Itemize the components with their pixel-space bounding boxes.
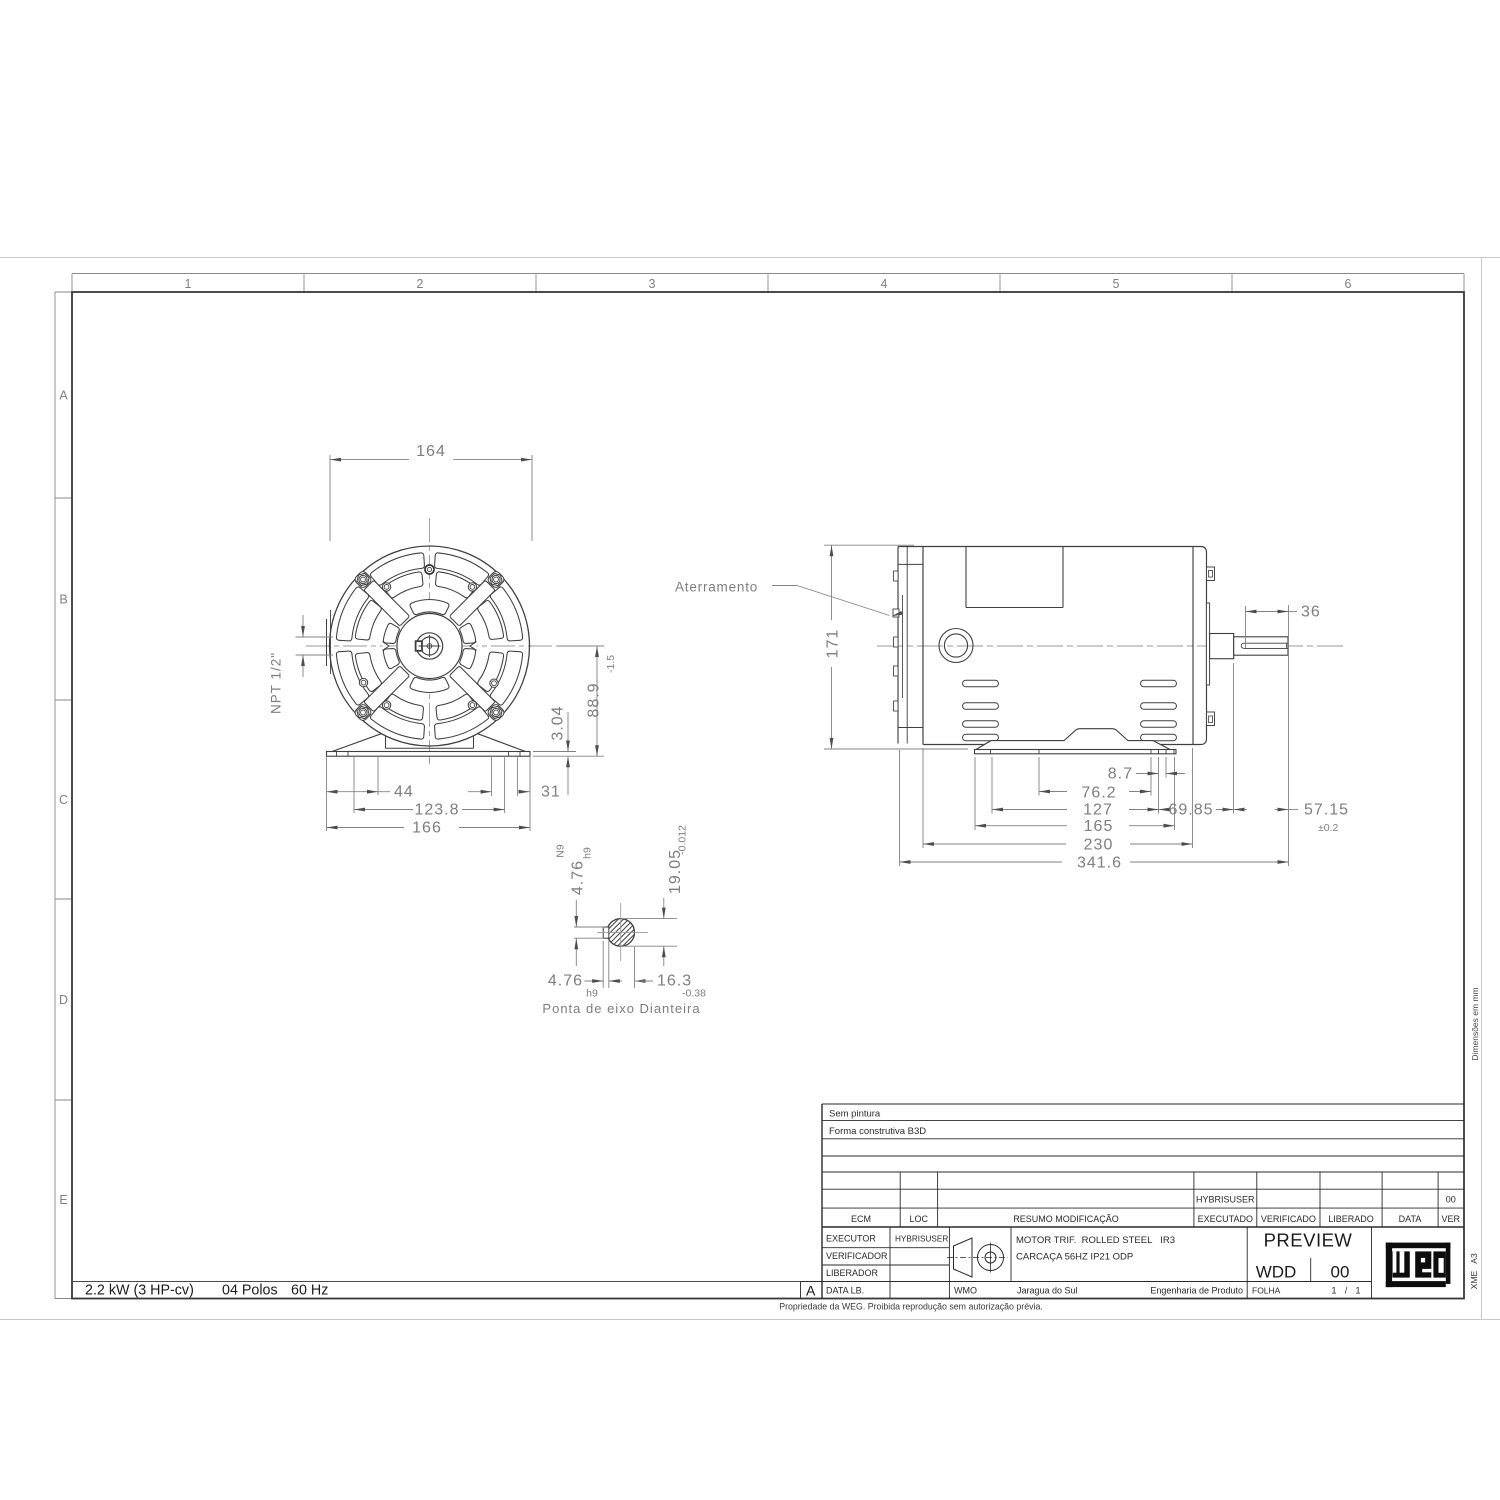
svg-text:D: D xyxy=(59,993,68,1007)
svg-text:EXECUTADO: EXECUTADO xyxy=(1198,1214,1253,1224)
svg-text:4.76: 4.76 xyxy=(570,860,587,895)
svg-text:HYBRISUSER: HYBRISUSER xyxy=(1196,1195,1255,1205)
svg-text:4: 4 xyxy=(881,277,888,291)
svg-text:MOTOR TRIF. ROLLED STEEL IR: MOTOR TRIF. ROLLED STEEL IR3 xyxy=(1016,1235,1175,1246)
svg-text:164: 164 xyxy=(416,443,446,460)
svg-text:-1.5: -1.5 xyxy=(605,655,617,673)
svg-text:60 Hz: 60 Hz xyxy=(291,1283,328,1299)
svg-text:C: C xyxy=(59,793,68,807)
svg-text:2: 2 xyxy=(417,277,424,291)
svg-text:Jaragua do Sul: Jaragua do Sul xyxy=(1017,1286,1078,1296)
svg-text:WMO: WMO xyxy=(954,1286,977,1296)
svg-text:LOC: LOC xyxy=(910,1214,929,1224)
svg-text:1: 1 xyxy=(1355,1286,1360,1296)
svg-text:N9: N9 xyxy=(555,844,567,858)
svg-text:A3: A3 xyxy=(1469,1253,1479,1264)
svg-text:57.15: 57.15 xyxy=(1304,802,1349,819)
svg-text:VERIFICADO: VERIFICADO xyxy=(1261,1214,1316,1224)
svg-text:LIBERADO: LIBERADO xyxy=(1328,1214,1374,1224)
svg-text:DATA: DATA xyxy=(1399,1214,1422,1224)
svg-text:-0.38: -0.38 xyxy=(682,988,706,1000)
svg-text:8.7: 8.7 xyxy=(1108,766,1133,783)
svg-text:00: 00 xyxy=(1331,1263,1350,1282)
svg-text:±0.2: ±0.2 xyxy=(1318,822,1339,834)
svg-text:04 Polos: 04 Polos xyxy=(222,1283,278,1299)
svg-text:165: 165 xyxy=(1084,818,1114,835)
svg-text:4.76: 4.76 xyxy=(548,973,583,990)
svg-text:6: 6 xyxy=(1345,277,1352,291)
svg-text:3: 3 xyxy=(649,277,656,291)
svg-text:88.9: 88.9 xyxy=(586,682,603,717)
svg-text:Aterramento: Aterramento xyxy=(675,580,758,595)
svg-text:Propriedade da WEG. Proibida r: Propriedade da WEG. Proibida reprodução … xyxy=(779,1302,1043,1312)
svg-text:31: 31 xyxy=(541,784,561,801)
svg-text:HYBRISUSER: HYBRISUSER xyxy=(895,1235,948,1244)
svg-text:3.04: 3.04 xyxy=(550,705,567,740)
svg-text:A: A xyxy=(806,1283,816,1299)
svg-text:76.2: 76.2 xyxy=(1081,785,1116,802)
svg-text:VERIFICADOR: VERIFICADOR xyxy=(826,1251,888,1261)
svg-text:123.8: 123.8 xyxy=(414,802,459,819)
svg-text:Engenharia de Produto: Engenharia de Produto xyxy=(1150,1286,1243,1296)
svg-text:XME: XME xyxy=(1469,1270,1479,1289)
svg-text:NPT 1/2": NPT 1/2" xyxy=(269,652,284,714)
svg-text:127: 127 xyxy=(1083,802,1113,819)
svg-text:Dimensões em mm: Dimensões em mm xyxy=(1470,987,1480,1060)
svg-text:-0.012: -0.012 xyxy=(677,825,689,855)
svg-text:166: 166 xyxy=(412,820,442,837)
svg-text:A: A xyxy=(59,389,68,403)
svg-text:1: 1 xyxy=(1331,1286,1336,1296)
svg-text:00: 00 xyxy=(1446,1195,1456,1205)
svg-text:CARCAÇA 56HZ IP21 ODP: CARCAÇA 56HZ IP21 ODP xyxy=(1016,1252,1133,1263)
svg-text:Sem pintura: Sem pintura xyxy=(829,1109,881,1120)
svg-text:VER: VER xyxy=(1441,1214,1460,1224)
svg-text:RESUMO MODIFICAÇÃO: RESUMO MODIFICAÇÃO xyxy=(1013,1214,1119,1224)
svg-text:69.85: 69.85 xyxy=(1168,802,1213,819)
svg-text:ECM: ECM xyxy=(851,1214,871,1224)
svg-text:EXECUTOR: EXECUTOR xyxy=(826,1234,876,1244)
svg-text:1: 1 xyxy=(185,277,192,291)
svg-text:E: E xyxy=(59,1193,67,1207)
svg-text:230: 230 xyxy=(1084,837,1114,854)
svg-text:PREVIEW: PREVIEW xyxy=(1264,1230,1353,1251)
svg-text:44: 44 xyxy=(394,784,414,801)
svg-text:WDD: WDD xyxy=(1256,1263,1297,1282)
svg-text:2.2 kW (3 HP-cv): 2.2 kW (3 HP-cv) xyxy=(85,1283,194,1299)
svg-text:36: 36 xyxy=(1301,604,1321,621)
svg-text:Forma construtiva B3D: Forma construtiva B3D xyxy=(829,1126,926,1137)
svg-text:DATA LB.: DATA LB. xyxy=(826,1286,864,1296)
svg-text:341.6: 341.6 xyxy=(1077,855,1122,872)
svg-text:171: 171 xyxy=(825,629,842,659)
svg-text:h9: h9 xyxy=(582,847,594,859)
svg-text:5: 5 xyxy=(1113,277,1120,291)
svg-text:h9: h9 xyxy=(586,988,598,1000)
svg-text:B: B xyxy=(59,593,67,607)
svg-text:FOLHA: FOLHA xyxy=(1252,1286,1281,1296)
svg-text:Ponta de eixo Dianteira: Ponta de eixo Dianteira xyxy=(542,1001,700,1016)
svg-text:LIBERADOR: LIBERADOR xyxy=(826,1268,879,1278)
